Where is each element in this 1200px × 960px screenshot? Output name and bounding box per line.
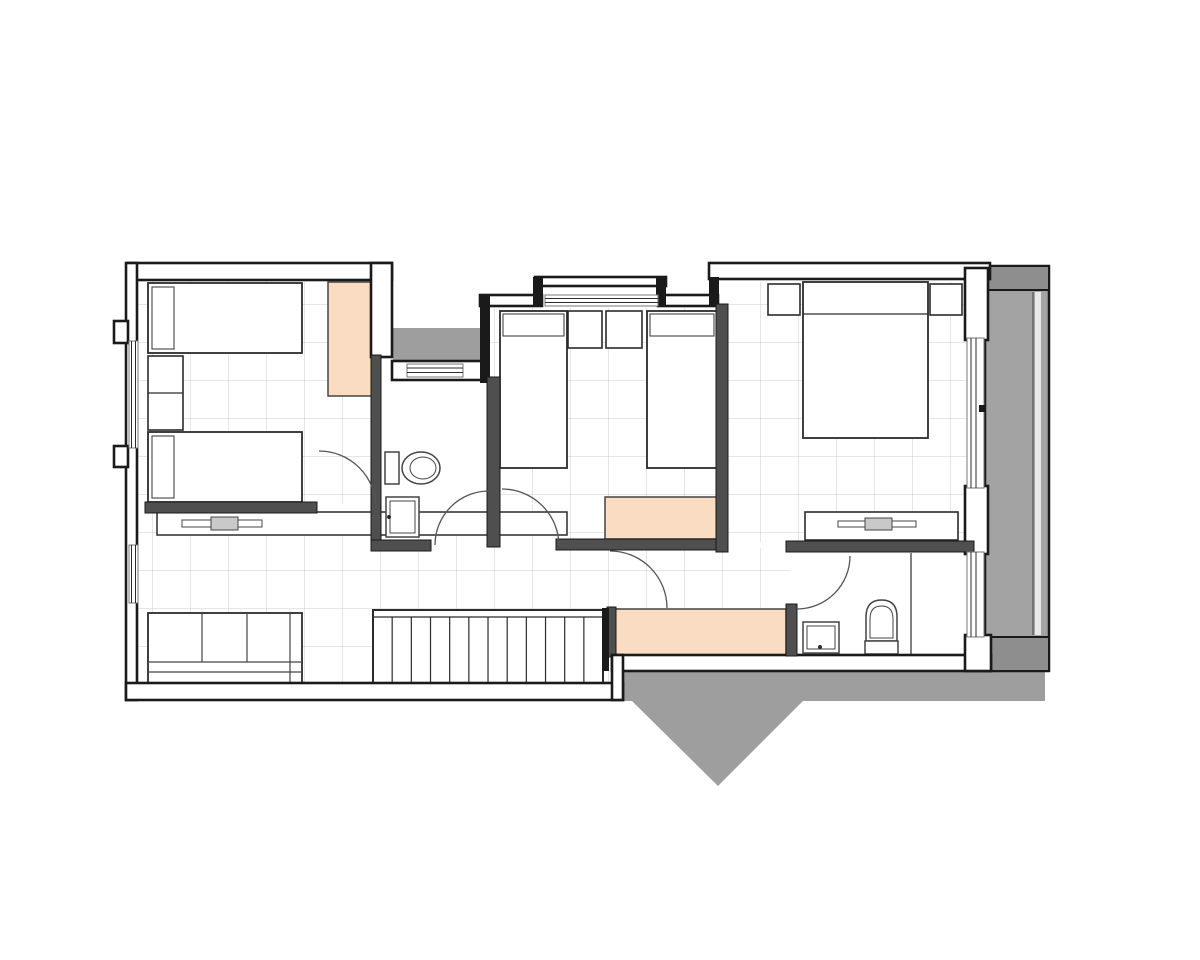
toilet-base	[865, 641, 898, 654]
nightstand	[606, 311, 642, 348]
window	[129, 341, 138, 448]
floor-plan-drawing	[0, 0, 1200, 960]
interior-wall	[371, 355, 381, 551]
tile-floor-corridor	[380, 548, 790, 608]
exterior-wall	[612, 655, 623, 700]
exterior-wall	[128, 263, 392, 280]
toilet-tank	[385, 452, 399, 484]
wardrobe	[615, 609, 786, 657]
exterior-wall-pier	[114, 321, 128, 343]
roof-notch-shadow	[393, 328, 483, 365]
balcony-rail-slit	[1035, 292, 1041, 635]
exterior-wall	[371, 263, 392, 357]
dormer-wall	[535, 277, 666, 286]
interior-wall	[556, 539, 728, 550]
bed-double	[803, 282, 928, 438]
exterior-wall	[709, 263, 990, 279]
pillow	[503, 314, 564, 336]
window-mullion-tick	[979, 405, 986, 412]
wardrobe	[328, 282, 373, 396]
exterior-wall	[126, 683, 623, 700]
nightstand	[930, 284, 962, 315]
interior-wall-stub	[602, 608, 609, 671]
pillow	[152, 287, 174, 349]
wardrobe	[605, 497, 718, 539]
wall-step	[533, 277, 543, 306]
window	[407, 364, 463, 377]
pillow	[650, 314, 714, 336]
dresser-handle-block	[865, 518, 892, 530]
exterior-wall-corner	[965, 635, 991, 671]
desk-lamp-block	[211, 517, 238, 530]
sink-faucet-dot	[818, 645, 822, 649]
nightstand	[768, 284, 800, 315]
window	[129, 545, 138, 603]
balcony-top-cap	[985, 266, 1049, 290]
interior-wall	[487, 377, 500, 547]
roof-below-shadow	[622, 671, 1045, 701]
interior-wall	[145, 502, 317, 513]
interior-wall	[786, 604, 797, 656]
nightstand	[568, 311, 602, 348]
exterior-wall	[612, 655, 991, 671]
door-swing-bathroom-2	[797, 556, 850, 609]
wall-step	[480, 295, 490, 383]
exterior-wall-pier	[965, 268, 988, 340]
interior-wall	[371, 540, 431, 551]
sink-faucet-dot	[387, 515, 391, 519]
balcony-bottom-cap	[985, 637, 1049, 671]
wall-step	[709, 277, 719, 306]
gable-roof-shadow	[632, 701, 803, 786]
exterior-wall-pier	[114, 446, 128, 467]
window	[545, 295, 658, 306]
interior-wall	[716, 304, 728, 552]
interior-wall	[786, 541, 974, 552]
floorplan-canvas	[0, 0, 1200, 960]
pillow	[152, 436, 174, 498]
